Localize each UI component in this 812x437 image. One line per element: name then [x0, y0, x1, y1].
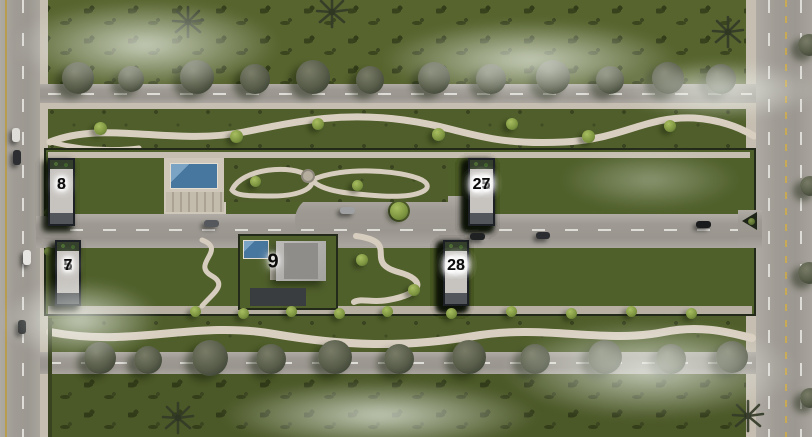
pool-loungers	[166, 192, 224, 212]
small-tree-icon	[506, 306, 517, 317]
small-tree-icon	[334, 308, 345, 319]
tree-icon	[240, 64, 270, 94]
villa-9-roof	[284, 243, 318, 279]
walking-path-north	[50, 117, 754, 143]
small-tree-icon	[190, 306, 201, 317]
car	[470, 233, 485, 240]
car	[696, 221, 711, 228]
small-tree-icon	[582, 130, 595, 143]
unit-number-label: 8	[48, 176, 75, 194]
villa-unit-27[interactable]: 27	[468, 158, 495, 226]
car	[204, 220, 219, 227]
car	[340, 207, 355, 214]
road-east	[756, 0, 812, 437]
community-swimming-pool	[170, 163, 218, 189]
car	[13, 150, 21, 165]
road-west-lane-dashes	[22, 0, 24, 437]
small-tree-icon	[432, 128, 445, 141]
small-tree-icon	[566, 308, 577, 319]
small-tree-icon	[446, 308, 457, 319]
road-west-yellow-line	[5, 0, 7, 437]
tree-icon	[118, 66, 144, 92]
small-tree-icon	[686, 308, 697, 319]
tree-icon	[256, 344, 286, 374]
small-tree-icon	[286, 306, 297, 317]
green-field-north	[40, 0, 756, 86]
small-tree-icon	[238, 308, 249, 319]
park-loop-west	[232, 169, 312, 196]
palm-tree-icon	[312, 0, 352, 32]
unit-number-label: 28	[443, 257, 469, 275]
unit-number-label: 7	[55, 257, 81, 275]
tree-icon	[706, 64, 736, 94]
tree-icon	[296, 60, 330, 94]
car	[18, 320, 26, 334]
park-loop-east	[312, 171, 427, 196]
car	[536, 232, 550, 239]
small-tree-icon	[408, 284, 420, 296]
tree-icon	[318, 340, 352, 374]
small-tree-icon	[352, 180, 363, 191]
tree-icon	[84, 342, 116, 374]
villa-9-driveway	[250, 288, 306, 306]
palm-tree-icon	[158, 398, 198, 437]
unit-number-9: 9	[258, 251, 288, 274]
green-field-south	[40, 374, 756, 437]
small-tree-icon	[626, 306, 637, 317]
car	[12, 128, 20, 142]
small-tree-icon	[382, 306, 393, 317]
villa-unit-28[interactable]: 28	[443, 240, 469, 306]
tree-icon	[356, 66, 384, 94]
tree-icon	[192, 340, 228, 376]
tree-icon	[62, 62, 94, 94]
west-garden-path-svg	[172, 236, 242, 310]
small-tree-icon	[312, 118, 324, 130]
hedge-line	[48, 318, 52, 437]
fountain-icon	[302, 170, 314, 182]
unit-number-label: 27	[468, 176, 495, 194]
palm-tree-icon	[168, 2, 208, 42]
tree-icon	[384, 344, 414, 374]
tree-icon	[596, 66, 624, 94]
tree-icon	[656, 344, 686, 374]
east-entrance-bush	[748, 218, 755, 225]
tree-icon	[716, 341, 748, 373]
garden-path-west	[202, 240, 219, 306]
palm-tree-icon	[728, 396, 768, 436]
tree-icon	[134, 346, 162, 374]
small-tree-icon	[506, 118, 518, 130]
tree-icon	[520, 344, 550, 374]
tree-icon	[452, 340, 486, 374]
small-tree-icon	[356, 254, 368, 266]
site-plan-canvas: 9 2 4 6 8 11 13 15 17 19 21 23 25 27 1 3…	[0, 0, 812, 437]
tree-icon	[536, 60, 570, 94]
small-tree-icon	[250, 176, 261, 187]
tree-icon	[652, 62, 684, 94]
road-north-lane-dashes	[48, 93, 752, 95]
villa-unit-8[interactable]: 8	[48, 158, 75, 226]
road-east-lane-dashes-1	[768, 0, 770, 437]
small-tree-icon	[664, 120, 676, 132]
tree-icon	[180, 60, 214, 94]
small-tree-icon	[94, 122, 107, 135]
small-tree-icon	[230, 130, 243, 143]
walking-path-south	[50, 329, 752, 344]
tree-icon	[476, 64, 506, 94]
road-east-lane-dashes-2	[800, 0, 802, 437]
road-east-yellow-line	[785, 0, 787, 437]
tree-icon	[588, 340, 622, 374]
palm-tree-icon	[708, 12, 748, 52]
east-garden-path-svg	[332, 228, 450, 312]
car	[23, 250, 31, 265]
tree-icon	[418, 62, 450, 94]
